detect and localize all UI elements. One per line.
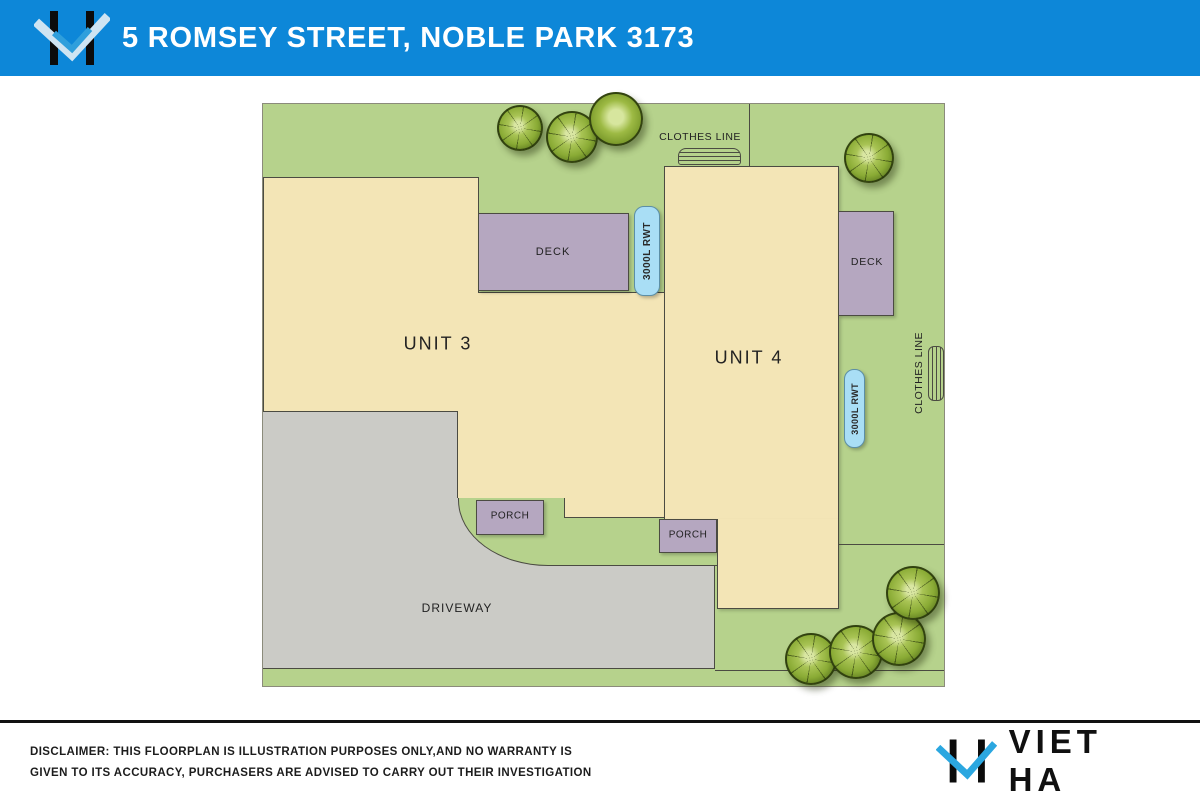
porch1-label: PORCH (491, 511, 530, 522)
boundary-line-right (839, 544, 944, 545)
unit4-building (664, 166, 839, 519)
unit4-building-lower (717, 519, 839, 609)
clothesline-icon-right (928, 346, 944, 401)
driveway-label: DRIVEWAY (422, 601, 493, 615)
rainwater-tank-label: 3000L RWT (850, 383, 860, 435)
unit3-lower-step (564, 498, 664, 518)
viet-ha-logo-icon (34, 8, 110, 68)
clothesline-label-top: CLOTHES LINE (659, 131, 741, 143)
deck2-label: DECK (851, 256, 883, 268)
header-bar: 5 ROMSEY STREET, NOBLE PARK 3173 (0, 0, 1200, 76)
disclaimer-line-2: GIVEN TO ITS ACCURACY, PURCHASERS ARE AD… (30, 763, 592, 784)
tree-icon (872, 612, 926, 666)
unit3-label: UNIT 3 (404, 334, 473, 355)
floorplan-page: 5 ROMSEY STREET, NOBLE PARK 3173 3000L R… (0, 0, 1200, 800)
disclaimer-text: DISCLAIMER: THIS FLOORPLAN IS ILLUSTRATI… (30, 742, 592, 785)
rainwater-tank-label: 3000L RWT (642, 222, 653, 280)
brand-name: VIET HA (1009, 723, 1170, 799)
boundary-line-top (749, 104, 750, 166)
unit4-label: UNIT 4 (715, 348, 784, 369)
tree-icon (589, 92, 643, 146)
page-title: 5 ROMSEY STREET, NOBLE PARK 3173 (122, 0, 694, 76)
clothesline-icon-top (678, 148, 741, 165)
tree-icon (844, 133, 894, 183)
clothesline-label-right: CLOTHES LINE (913, 332, 925, 414)
viet-ha-mark-icon (936, 737, 997, 785)
tree-icon (886, 566, 940, 620)
tree-icon (497, 105, 543, 151)
deck1-label: DECK (536, 246, 571, 258)
rainwater-tank-unit4: 3000L RWT (844, 369, 865, 448)
driveway-edge-line (457, 411, 458, 503)
footer-brand: VIET HA (936, 736, 1170, 786)
driveway-area-lower (263, 561, 715, 669)
rainwater-tank-unit3: 3000L RWT (634, 206, 660, 296)
disclaimer-line-1: DISCLAIMER: THIS FLOORPLAN IS ILLUSTRATI… (30, 742, 592, 763)
site-plan: 3000L RWT 3000L RWT CLOTHES LINE CLOTHES… (262, 103, 945, 687)
porch2-label: PORCH (669, 530, 708, 541)
